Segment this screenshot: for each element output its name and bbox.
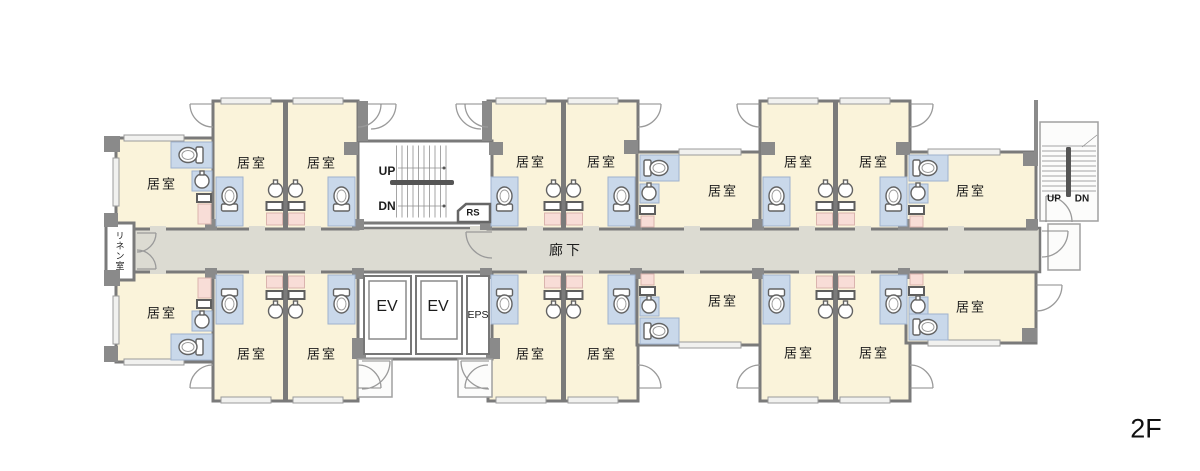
eps-label: EPS <box>467 309 488 321</box>
door-arc <box>737 365 760 388</box>
stair-dn-label: DN <box>378 199 395 213</box>
toilet-icon <box>769 289 785 313</box>
elevator-bank <box>358 276 492 397</box>
room-label: 居室 <box>587 152 617 171</box>
door-arc <box>371 104 396 129</box>
toilet-icon <box>886 187 902 211</box>
door-arc <box>910 104 933 127</box>
corridor <box>133 228 1040 272</box>
floor-indicator: 2F <box>1130 414 1162 445</box>
room-label: 居室 <box>516 344 546 363</box>
linen-room-label: リネン室 <box>114 231 127 271</box>
room-label: 居室 <box>956 181 986 200</box>
toilet-icon <box>179 147 203 163</box>
door-arc <box>910 365 933 388</box>
room-label: 居室 <box>587 344 617 363</box>
door-arc <box>190 365 213 388</box>
room-label: 居室 <box>708 291 738 310</box>
toilet-icon <box>222 289 238 313</box>
door-arc <box>190 104 213 127</box>
room-label: 居室 <box>708 181 738 200</box>
room-label: 居室 <box>147 174 177 193</box>
room-label: 居室 <box>237 153 267 172</box>
room-label: 居室 <box>147 303 177 322</box>
floor-plan: 居室 居室 居室 居室 居室 居室 居室 居室 居室 居室 居室 居室 居室 居… <box>0 0 1200 471</box>
toilet-icon <box>769 187 785 211</box>
corridor-label: 廊下 <box>549 240 583 260</box>
stair-dn-label: DN <box>1075 194 1089 205</box>
door-arc <box>638 104 661 127</box>
door-arc <box>638 365 661 388</box>
toilet-icon <box>886 289 902 313</box>
room-label: 居室 <box>956 297 986 316</box>
room-label: 居室 <box>307 153 337 172</box>
room-label: 居室 <box>307 344 337 363</box>
toilet-icon <box>913 319 937 335</box>
toilet-icon <box>614 187 630 211</box>
room-label: 居室 <box>784 152 814 171</box>
toilet-icon <box>614 289 630 313</box>
stair-up-label: UP <box>379 164 396 178</box>
door-arc <box>1036 285 1062 311</box>
toilet-icon <box>179 339 203 355</box>
toilet-icon <box>334 187 350 211</box>
toilet-icon <box>644 160 668 176</box>
stair-up-label: UP <box>1047 194 1061 205</box>
toilet-icon <box>497 289 513 313</box>
toilet-icon <box>644 323 668 339</box>
room-label: 居室 <box>859 152 889 171</box>
rs-label: RS <box>466 208 479 219</box>
elevator-label: EV <box>427 298 448 316</box>
toilet-icon <box>334 289 350 313</box>
room-label: 居室 <box>237 344 267 363</box>
room-label: 居室 <box>516 152 546 171</box>
toilet-icon <box>497 187 513 211</box>
room-label: 居室 <box>859 343 889 362</box>
toilet-icon <box>913 160 937 176</box>
toilet-icon <box>222 187 238 211</box>
door-arc <box>737 104 760 127</box>
room-label: 居室 <box>784 343 814 362</box>
elevator-label: EV <box>376 298 397 316</box>
floorplan-linework <box>0 0 1200 471</box>
